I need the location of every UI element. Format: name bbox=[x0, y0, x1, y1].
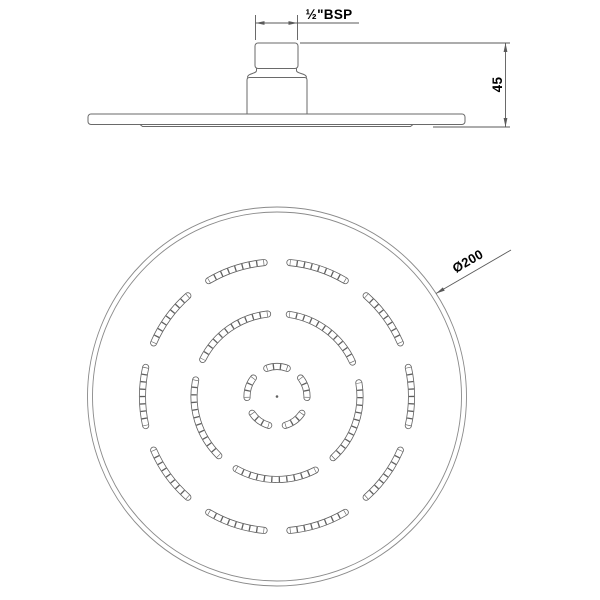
stem-base-outline bbox=[247, 78, 307, 115]
shower-head-technical-drawing: ½"BSP 45 Ø200 bbox=[0, 0, 600, 600]
thread-dim-arrow-left bbox=[256, 21, 265, 25]
thread-connector-outline bbox=[255, 43, 298, 69]
plate-side-outline bbox=[88, 114, 465, 125]
drawing-page: ½"BSP 45 Ø200 bbox=[0, 0, 600, 600]
height-dim-arrow-bottom bbox=[504, 118, 508, 127]
neck-flare-left bbox=[248, 69, 257, 78]
thread-dim-arrow-right bbox=[289, 21, 298, 25]
nozzle-slot-fill-ring1 bbox=[267, 367, 288, 369]
neck-flare-right bbox=[297, 69, 307, 78]
thread-size-label: ½"BSP bbox=[306, 7, 353, 22]
diameter-leader-arrow bbox=[436, 287, 445, 293]
center-dot bbox=[276, 395, 279, 398]
side-elevation-view bbox=[88, 43, 465, 127]
height-dimension-label: 45 bbox=[490, 77, 505, 93]
face-view bbox=[88, 207, 512, 586]
diameter-label: Ø200 bbox=[450, 246, 486, 275]
height-dim-arrow-top bbox=[504, 43, 508, 52]
